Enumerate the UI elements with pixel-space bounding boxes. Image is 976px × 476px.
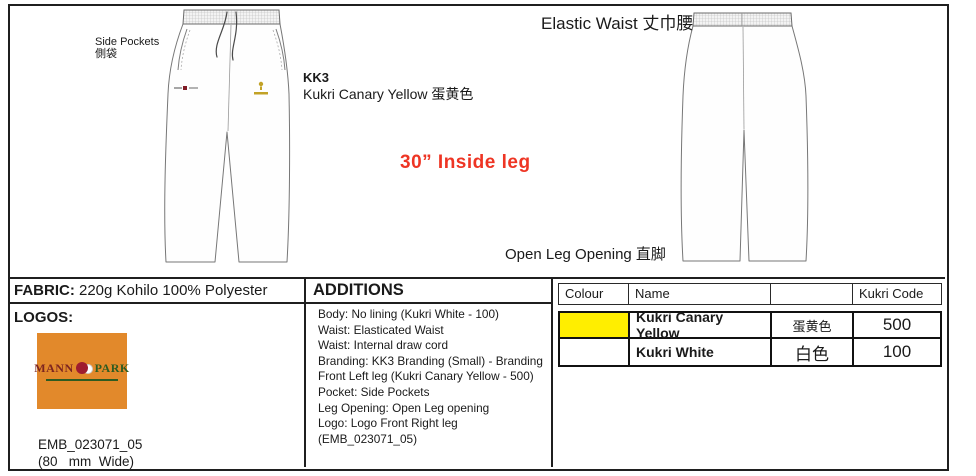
additions-list: Body: No lining (Kukri White - 100) Wais… — [318, 307, 543, 447]
logo-underline — [46, 379, 118, 381]
fabric-label: FABRIC: — [14, 282, 75, 299]
column-header-cn — [771, 284, 853, 304]
swatch-canary-yellow — [560, 313, 630, 339]
kukri-code-value: 500 — [854, 313, 940, 339]
elastic-waist-label: Elastic Waist 丈巾腰 — [541, 9, 693, 34]
trouser-back-view — [681, 13, 808, 261]
elastic-waistband-front — [183, 10, 280, 24]
logo-text-park: PARK — [95, 361, 130, 376]
colour-table-body: Kukri Canary Yellow 蛋黄色 500 Kukri White … — [558, 311, 942, 367]
logos-title: LOGOS: — [14, 309, 73, 326]
fabric-value: 220g Kohilo 100% Polyester — [79, 282, 267, 299]
spec-sheet: Side Pockets 側袋 KK3 Kukri Canary Yellow … — [0, 0, 976, 476]
side-pockets-label: Side Pockets 側袋 — [95, 36, 159, 60]
side-pockets-label-cn: 側袋 — [95, 48, 117, 60]
swatch-white — [560, 339, 630, 365]
logo-circles-icon — [76, 362, 93, 376]
trouser-front-view — [165, 10, 290, 262]
colour-name: Kukri White — [630, 339, 772, 365]
colour-table: Colour Name Kukri Code Kukri Canary Yell… — [558, 283, 942, 367]
side-pockets-label-en: Side Pockets — [95, 36, 159, 48]
branding-colour-name: Kukri Canary Yellow 蛋黄色 — [303, 86, 473, 102]
branding-code: KK3 — [303, 70, 473, 86]
fabric-row: FABRIC: 220g Kohilo 100% Polyester — [14, 282, 267, 299]
colour-name-cn: 蛋黄色 — [772, 313, 854, 339]
fabric-row-divider — [8, 302, 553, 304]
column-header-kukri-code: Kukri Code — [853, 284, 939, 304]
colour-table-header: Colour Name Kukri Code — [558, 283, 942, 305]
inside-leg-measurement: 30” Inside leg — [400, 152, 531, 174]
colour-name-cn: 白色 — [772, 339, 854, 365]
open-leg-opening-label: Open Leg Opening 直脚 — [505, 243, 666, 264]
logo-text-mann: MANN — [34, 361, 73, 376]
spec-area-top-divider — [8, 277, 945, 279]
column-header-colour: Colour — [559, 284, 629, 304]
kukri-code-value: 100 — [854, 339, 940, 365]
colour-name: Kukri Canary Yellow — [630, 313, 772, 339]
additions-column-divider — [551, 277, 553, 467]
column-header-name: Name — [629, 284, 771, 304]
additions-title: ADDITIONS — [313, 281, 404, 300]
elastic-waistband-back — [693, 13, 792, 26]
branding-callout: KK3 Kukri Canary Yellow 蛋黄色 — [303, 70, 473, 102]
embroidery-width-note: (80 mm Wide) — [38, 454, 134, 469]
left-column-divider — [304, 277, 306, 467]
embroidery-code: EMB_023071_05 — [38, 437, 142, 452]
mannpark-logo: MANN PARK — [37, 333, 127, 409]
